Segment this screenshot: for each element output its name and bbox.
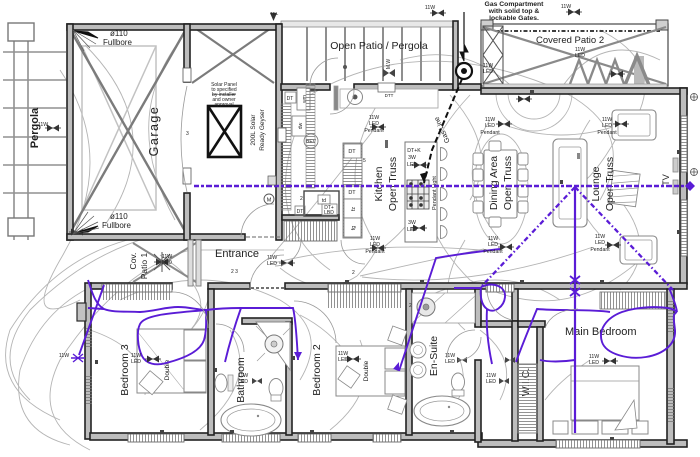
svg-text:11W: 11W <box>561 4 571 10</box>
svg-text:TEL: TEL <box>270 11 279 16</box>
svg-text:fg: fg <box>351 226 357 231</box>
svg-text:DT+K: DT+K <box>407 148 421 154</box>
svg-text:fz: fz <box>351 207 357 212</box>
svg-text:LED: LED <box>483 69 493 75</box>
svg-text:Open Truss: Open Truss <box>387 157 399 211</box>
svg-text:M.W: M.W <box>386 59 392 70</box>
svg-text:dw: dw <box>298 122 304 129</box>
svg-text:Open Truss: Open Truss <box>502 156 514 210</box>
svg-text:td: td <box>322 198 326 204</box>
svg-text:2: 2 <box>300 196 303 202</box>
svg-text:Lounge: Lounge <box>590 166 602 201</box>
svg-text:Pendant Light: Pendant Light <box>432 176 438 210</box>
svg-text:3: 3 <box>186 131 189 137</box>
svg-text:2 3: 2 3 <box>231 269 238 275</box>
svg-text:LED: LED <box>407 227 417 233</box>
svg-text:2: 2 <box>409 303 412 309</box>
svg-text:LED: LED <box>485 123 495 129</box>
svg-text:Open Truss: Open Truss <box>604 157 616 211</box>
svg-text:Pendant: Pendant <box>590 247 610 253</box>
svg-text:Dining Area: Dining Area <box>488 156 500 210</box>
svg-text:Fullbore: Fullbore <box>102 221 131 230</box>
svg-text:DT: DT <box>348 190 356 196</box>
svg-text:Garage: Garage <box>147 106 161 157</box>
svg-text:DT: DT <box>348 149 356 155</box>
svg-text:11W: 11W <box>425 5 435 11</box>
svg-text:LED: LED <box>445 359 455 365</box>
svg-text:LED: LED <box>338 357 348 363</box>
svg-text:LED: LED <box>595 240 605 246</box>
svg-text:Bedroom 3: Bedroom 3 <box>119 344 131 396</box>
svg-text:LED: LED <box>131 359 141 365</box>
svg-text:DTT: DTT <box>385 93 394 98</box>
svg-text:LED: LED <box>589 360 599 366</box>
svg-text:DT: DT <box>287 96 294 102</box>
svg-text:LED: LED <box>407 162 417 168</box>
svg-text:with solid top &: with solid top & <box>488 8 540 15</box>
svg-text:Cov.: Cov. <box>128 253 138 270</box>
svg-text:Entrance: Entrance <box>215 248 259 260</box>
svg-text:3W: 3W <box>408 220 416 226</box>
svg-text:11W: 11W <box>59 353 69 359</box>
svg-text:5: 5 <box>363 158 366 164</box>
svg-text:LED: LED <box>488 242 498 248</box>
svg-text:Gas Compartment: Gas Compartment <box>485 1 545 8</box>
svg-text:DT: DT <box>297 209 304 215</box>
svg-text:Covered Patio 2: Covered Patio 2 <box>536 35 604 46</box>
svg-text:Bedroom 2: Bedroom 2 <box>311 344 323 396</box>
svg-text:lockable Gates.: lockable Gates. <box>489 15 539 22</box>
svg-text:11W: 11W <box>38 122 48 128</box>
svg-text:Fullbore: Fullbore <box>103 38 132 47</box>
svg-text:3W: 3W <box>408 155 416 161</box>
svg-text:En-Suite: En-Suite <box>428 336 440 376</box>
svg-text:LED: LED <box>486 379 496 385</box>
svg-text:ø110: ø110 <box>110 212 128 221</box>
svg-text:LED: LED <box>238 379 248 385</box>
svg-text:Pendant: Pendant <box>483 249 503 255</box>
svg-text:M: M <box>267 198 272 204</box>
svg-text:approval: approval <box>214 102 233 108</box>
svg-text:Open Patio / Pergola: Open Patio / Pergola <box>330 40 428 52</box>
svg-text:ø110: ø110 <box>110 29 128 38</box>
svg-text:Pendant: Pendant <box>364 128 384 134</box>
svg-text:Pendant: Pendant <box>480 130 500 136</box>
svg-text:LED: LED <box>162 260 172 266</box>
svg-text:LED: LED <box>369 121 379 127</box>
svg-text:TV: TV <box>661 174 671 186</box>
svg-text:LED: LED <box>370 242 380 248</box>
svg-text:Kitchen: Kitchen <box>373 166 385 201</box>
svg-text:Patio 1: Patio 1 <box>139 252 149 279</box>
svg-text:LBD: LBD <box>324 210 334 216</box>
svg-text:Pendant: Pendant <box>365 249 385 255</box>
svg-text:2: 2 <box>352 270 355 276</box>
svg-text:LED: LED <box>575 53 585 59</box>
svg-text:Pendant: Pendant <box>597 130 617 136</box>
svg-text:200L Solar: 200L Solar <box>250 114 257 146</box>
svg-text:LED: LED <box>602 123 612 129</box>
svg-text:Ready Geyser: Ready Geyser <box>259 108 266 150</box>
svg-text:Double: Double <box>363 360 370 381</box>
